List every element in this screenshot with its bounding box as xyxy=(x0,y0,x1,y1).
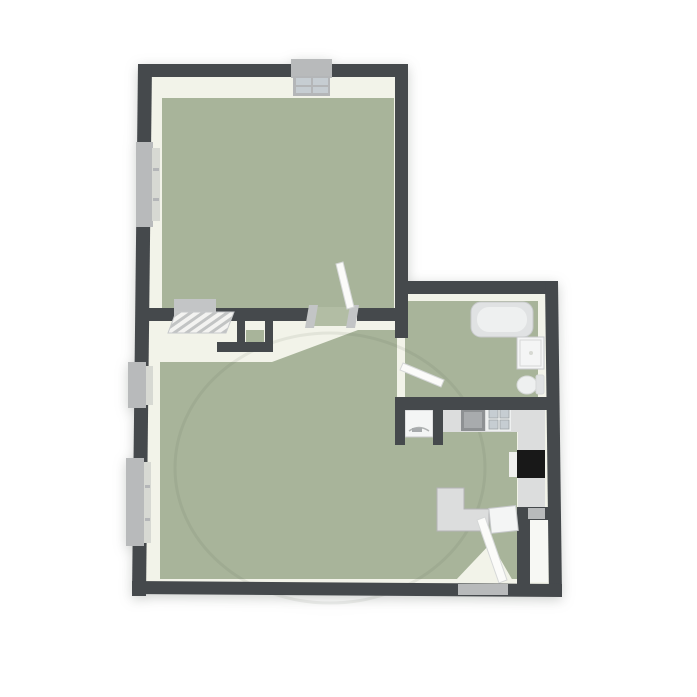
floor-plan xyxy=(126,59,562,603)
kitchen-sink-basin xyxy=(464,412,482,428)
wall-kitchen-divider xyxy=(395,397,558,410)
wall-top xyxy=(138,64,408,77)
closet-floor xyxy=(530,519,548,582)
closet-vent xyxy=(528,508,545,519)
duct-wall-bottom xyxy=(217,342,273,352)
washing-machine xyxy=(405,410,433,437)
radiator-pane xyxy=(296,87,311,93)
radiator-pane xyxy=(296,78,311,85)
washing-machine-panel xyxy=(412,428,422,432)
toilet-bowl xyxy=(517,376,537,394)
wall-niche-right xyxy=(433,410,443,445)
living-window-upper-sill xyxy=(146,366,153,405)
vanity-faucet xyxy=(529,351,533,355)
toilet-tank xyxy=(536,375,544,394)
duct-floor xyxy=(246,330,264,342)
floor-plan-canvas xyxy=(0,0,697,697)
wall-bathroom-top xyxy=(395,281,558,294)
cooktop-burner xyxy=(489,420,498,429)
oven xyxy=(517,450,545,478)
cooktop-burner xyxy=(489,409,498,418)
entry-cabinet xyxy=(489,506,518,534)
wall-niche-left xyxy=(395,410,405,445)
hall-radiator xyxy=(168,312,234,333)
oven-handle xyxy=(509,452,517,477)
wall-bathroom-left xyxy=(395,294,408,338)
radiator-pane xyxy=(313,87,328,93)
bedroom-window xyxy=(136,142,153,227)
living-window-lower-sill xyxy=(144,462,151,543)
window-latch xyxy=(145,485,150,488)
bathtub-basin xyxy=(477,307,527,332)
bedroom-window-sill xyxy=(152,148,160,221)
living-window-lower xyxy=(126,458,144,546)
cooktop-burner xyxy=(500,409,509,418)
floor-plan-image xyxy=(0,0,697,697)
window-latch xyxy=(145,518,150,521)
window-latch xyxy=(153,198,159,201)
bedroom-rug xyxy=(162,98,394,310)
living-window-upper xyxy=(128,362,146,408)
bedroom-top-window xyxy=(291,59,332,78)
wall-bedroom-right xyxy=(395,64,408,294)
window-latch xyxy=(153,168,159,171)
cooktop-burner xyxy=(500,420,509,429)
radiator-pane xyxy=(313,78,328,85)
entry-door-frame xyxy=(458,584,508,595)
